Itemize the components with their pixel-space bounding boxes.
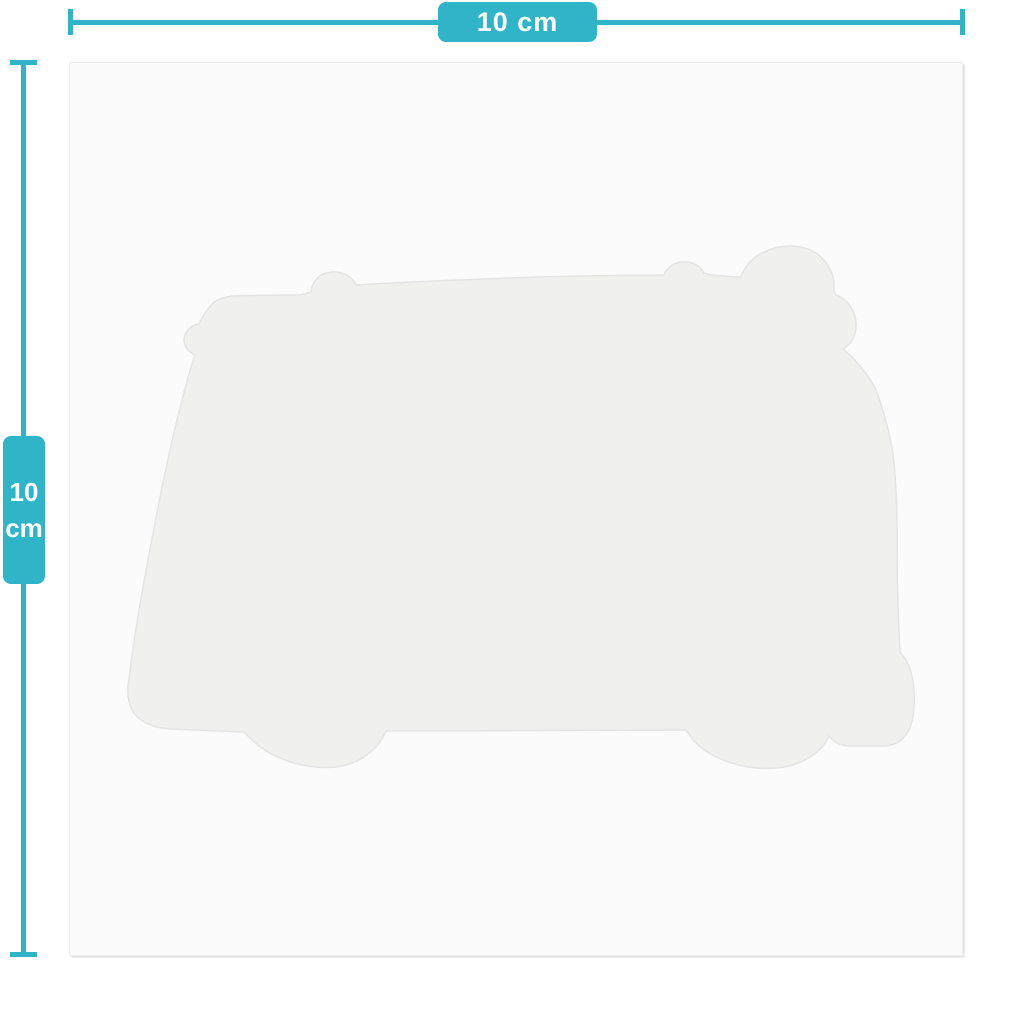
horizontal-dimension-label: 10 cm — [438, 2, 597, 42]
vertical-dimension-unit: cm — [5, 510, 43, 546]
vertical-dimension-cap-top — [10, 60, 37, 65]
horizontal-dimension-text: 10 cm — [477, 7, 559, 38]
campervan-silhouette-path — [128, 246, 915, 768]
vertical-dimension-value: 10 — [10, 474, 39, 510]
horizontal-dimension-cap-left — [68, 9, 73, 35]
vertical-dimension-label: 10 cm — [3, 436, 45, 584]
size-guide-canvas: 10 cm 10 cm — [0, 0, 1024, 1024]
campervan-surfboard-silhouette-icon — [0, 0, 1024, 1024]
vertical-dimension-cap-bottom — [10, 952, 37, 957]
horizontal-dimension-cap-right — [960, 9, 965, 35]
